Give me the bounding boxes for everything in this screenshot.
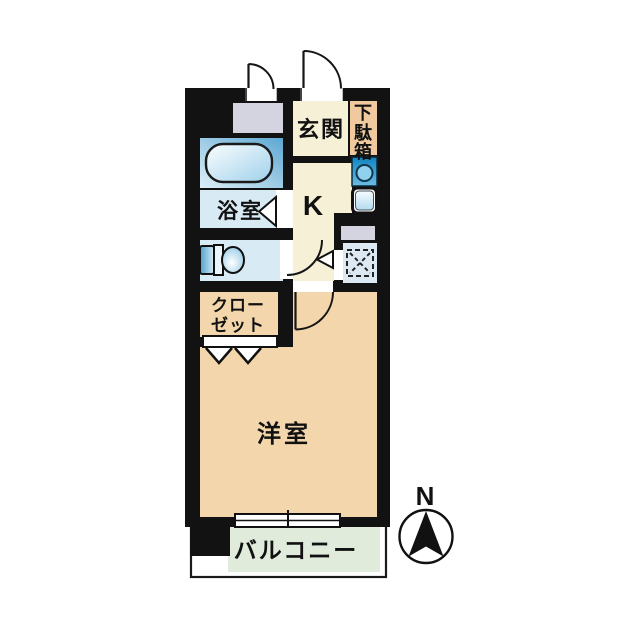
entrance-label: 玄関 (297, 117, 345, 142)
kitchen-floor-lower (293, 213, 334, 281)
bathroom-label: 浴室 (217, 199, 263, 223)
service-door-opening (245, 88, 278, 101)
entrance-door-opening (300, 88, 344, 101)
bathtub (206, 144, 272, 182)
western-room-floor-right (293, 292, 377, 517)
compass: N (400, 481, 453, 563)
toilet (200, 245, 244, 275)
washer-space (233, 103, 283, 133)
shoe-cabinet-label-3: 箱 (354, 141, 372, 162)
counter-shelf (341, 226, 375, 240)
closet-label-line1: クロー (211, 296, 265, 315)
shoe-cabinet-label-2: 駄 (354, 122, 373, 143)
western-room-label: 洋室 (257, 420, 311, 448)
shoe-cabinet-label-1: 下 (354, 103, 372, 123)
toilet-door-opening (280, 240, 293, 279)
balcony-label: バルコニー (234, 537, 359, 563)
bathroom-door-opening (276, 190, 293, 228)
kitchen-label: K (303, 190, 323, 221)
floor-plan-page: バルコニー (0, 0, 640, 640)
floor-plan-drawing: バルコニー (0, 0, 640, 640)
closet-label-line2: ゼット (211, 315, 265, 335)
balcony-wall-block (190, 522, 230, 556)
nook-door-opening (334, 250, 343, 280)
compass-north-label: N (416, 481, 435, 511)
kitchen-sink (353, 188, 377, 213)
room-door-opening (293, 281, 333, 292)
